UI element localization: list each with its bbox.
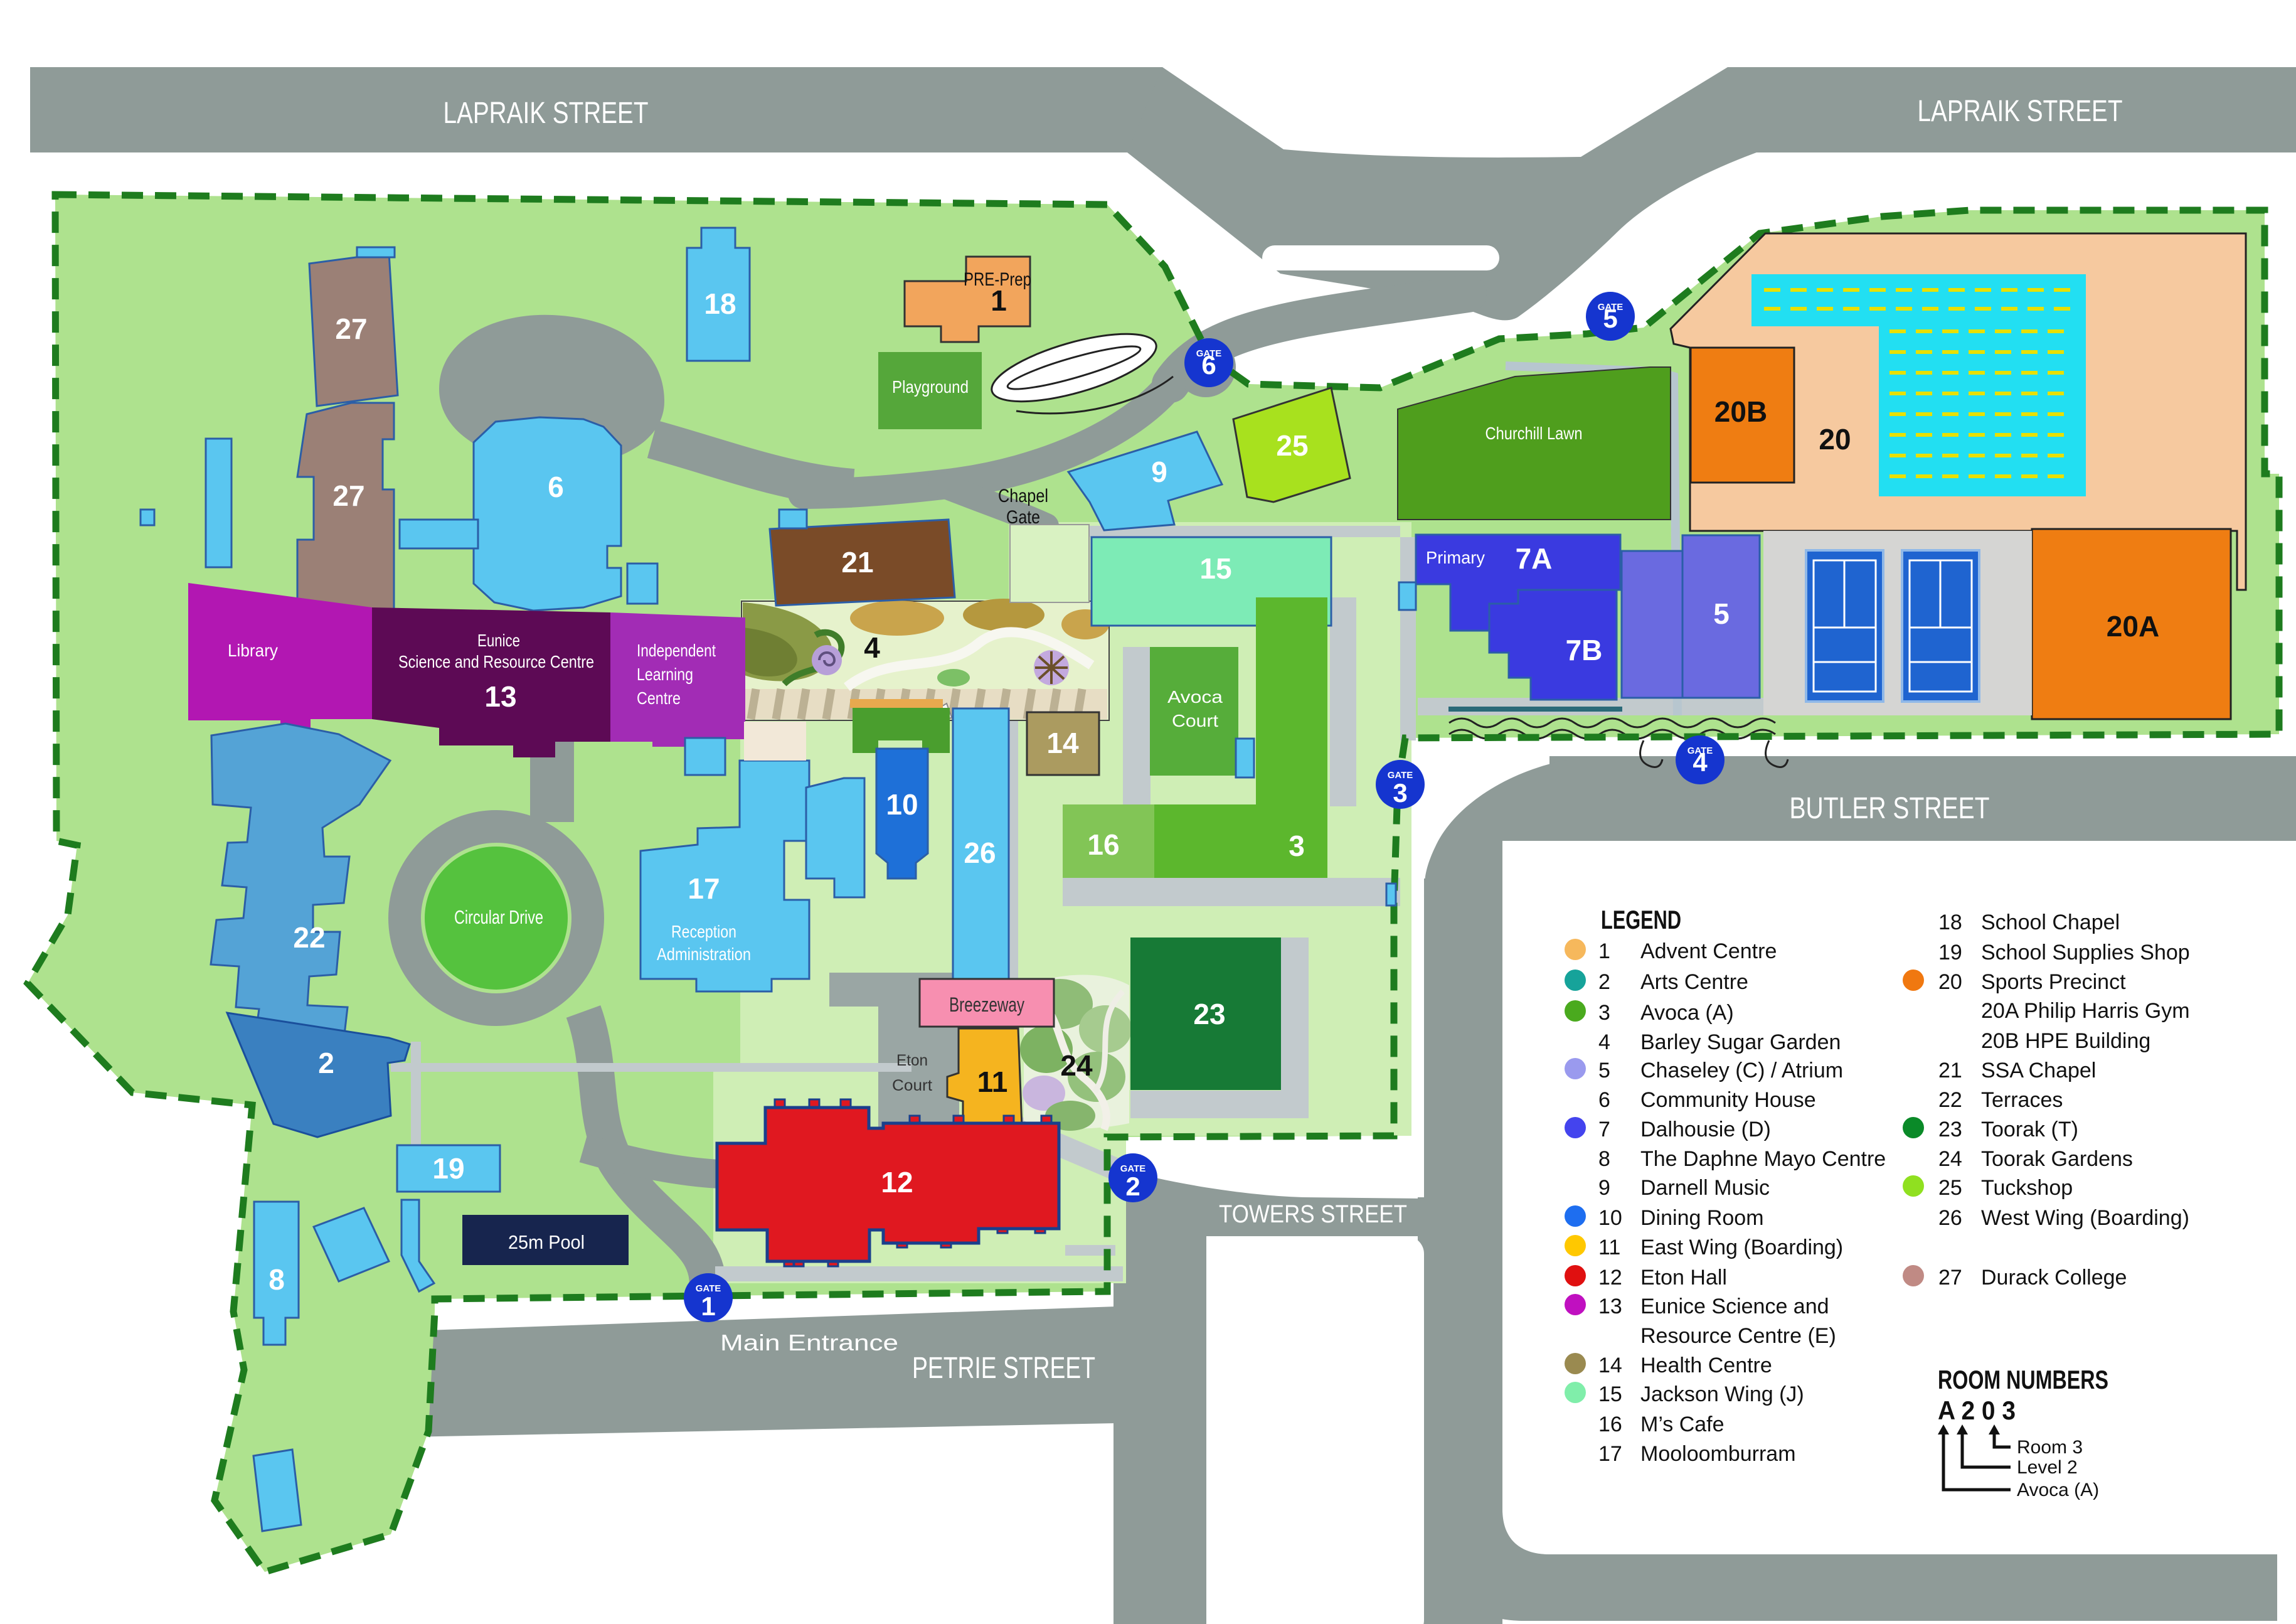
svg-text:LAPRAIK STREET: LAPRAIK STREET <box>444 97 649 130</box>
svg-text:12: 12 <box>881 1166 913 1199</box>
svg-text:8: 8 <box>1598 1147 1610 1171</box>
svg-text:West Wing (Boarding): West Wing (Boarding) <box>1981 1206 2189 1230</box>
svg-text:Centre: Centre <box>637 688 681 708</box>
svg-text:Science and Resource Centre: Science and Resource Centre <box>398 652 594 671</box>
svg-text:12: 12 <box>1598 1266 1622 1290</box>
svg-text:6: 6 <box>1598 1088 1610 1112</box>
svg-text:10: 10 <box>886 788 918 821</box>
svg-text:2: 2 <box>318 1047 334 1079</box>
svg-text:BUTLER STREET: BUTLER STREET <box>1790 792 1990 825</box>
svg-text:Dining Room: Dining Room <box>1640 1206 1764 1230</box>
svg-text:Learning: Learning <box>637 665 693 684</box>
svg-text:Jackson Wing (J): Jackson Wing (J) <box>1640 1382 1804 1406</box>
svg-text:A 2 0 3: A 2 0 3 <box>1938 1396 2016 1425</box>
svg-text:6: 6 <box>548 471 564 503</box>
svg-text:Chaseley (C) / Atrium: Chaseley (C) / Atrium <box>1640 1059 1843 1082</box>
svg-text:14: 14 <box>1046 727 1079 759</box>
svg-text:3: 3 <box>1289 830 1305 862</box>
svg-text:PETRIE STREET: PETRIE STREET <box>912 1352 1095 1385</box>
svg-text:7B: 7B <box>1566 634 1603 666</box>
svg-text:Mooloomburram: Mooloomburram <box>1640 1442 1796 1466</box>
svg-text:Court: Court <box>892 1077 932 1094</box>
svg-text:20A: 20A <box>2107 610 2159 643</box>
svg-text:27: 27 <box>332 479 364 512</box>
svg-text:1: 1 <box>1598 939 1610 963</box>
svg-text:Library: Library <box>228 641 278 660</box>
svg-text:2: 2 <box>1125 1172 1140 1201</box>
svg-text:20A Philip Harris Gym: 20A Philip Harris Gym <box>1981 999 2190 1023</box>
svg-text:24: 24 <box>1060 1049 1093 1082</box>
svg-text:Tuckshop: Tuckshop <box>1981 1176 2073 1200</box>
svg-text:The Daphne Mayo Centre: The Daphne Mayo Centre <box>1640 1147 1886 1171</box>
svg-text:8: 8 <box>268 1263 285 1296</box>
svg-text:SSA Chapel: SSA Chapel <box>1981 1059 2096 1082</box>
svg-text:20: 20 <box>1819 423 1851 456</box>
svg-text:School Chapel: School Chapel <box>1981 911 2120 934</box>
svg-text:9: 9 <box>1151 456 1167 488</box>
svg-text:4: 4 <box>1598 1030 1610 1054</box>
svg-text:18: 18 <box>704 287 736 320</box>
svg-text:Breezeway: Breezeway <box>949 993 1024 1016</box>
svg-text:14: 14 <box>1598 1354 1622 1377</box>
svg-text:20B: 20B <box>1714 395 1767 428</box>
svg-text:25: 25 <box>1938 1176 1962 1200</box>
svg-text:7A: 7A <box>1516 542 1553 575</box>
svg-text:Resource Centre (E): Resource Centre (E) <box>1640 1324 1836 1348</box>
svg-text:Sports Precinct: Sports Precinct <box>1981 970 2126 994</box>
svg-text:Eton: Eton <box>896 1052 928 1069</box>
svg-text:Reception: Reception <box>671 922 736 941</box>
svg-text:Darnell Music: Darnell Music <box>1640 1176 1770 1200</box>
svg-text:Advent Centre: Advent Centre <box>1640 939 1777 963</box>
svg-text:Eunice Science and: Eunice Science and <box>1640 1295 1829 1318</box>
svg-text:26: 26 <box>1938 1206 1962 1230</box>
svg-text:24: 24 <box>1938 1147 1962 1171</box>
svg-text:22: 22 <box>1938 1088 1962 1112</box>
svg-text:15: 15 <box>1598 1382 1622 1406</box>
svg-text:1: 1 <box>991 284 1007 317</box>
svg-text:Toorak Gardens: Toorak Gardens <box>1981 1147 2133 1171</box>
svg-text:LEGEND: LEGEND <box>1601 905 1681 934</box>
svg-text:Circular Drive: Circular Drive <box>454 906 543 928</box>
svg-text:Barley Sugar Garden: Barley Sugar Garden <box>1640 1030 1841 1054</box>
svg-text:21: 21 <box>841 546 873 579</box>
svg-text:6: 6 <box>1201 350 1216 380</box>
svg-text:3: 3 <box>1598 1001 1610 1025</box>
svg-text:Toorak (T): Toorak (T) <box>1981 1118 2078 1141</box>
svg-text:27: 27 <box>1938 1266 1962 1290</box>
svg-text:Primary: Primary <box>1426 548 1485 567</box>
svg-text:27: 27 <box>335 313 367 345</box>
svg-text:Avoca: Avoca <box>1167 687 1223 707</box>
svg-text:Terraces: Terraces <box>1981 1088 2063 1112</box>
svg-text:25m Pool: 25m Pool <box>508 1231 585 1253</box>
svg-text:13: 13 <box>1598 1295 1622 1318</box>
svg-text:16: 16 <box>1087 828 1119 861</box>
svg-text:LAPRAIK STREET: LAPRAIK STREET <box>1918 95 2123 128</box>
svg-text:Durack College: Durack College <box>1981 1266 2127 1290</box>
svg-text:17: 17 <box>688 872 720 905</box>
svg-text:21: 21 <box>1938 1059 1962 1082</box>
svg-text:19: 19 <box>432 1152 464 1185</box>
svg-text:Community House: Community House <box>1640 1088 1816 1112</box>
svg-text:Eton Hall: Eton Hall <box>1640 1266 1727 1290</box>
svg-text:Court: Court <box>1172 711 1218 730</box>
svg-text:15: 15 <box>1199 552 1231 585</box>
svg-text:Churchill Lawn: Churchill Lawn <box>1485 424 1583 443</box>
svg-text:11: 11 <box>977 1066 1008 1098</box>
svg-text:25: 25 <box>1276 429 1308 462</box>
svg-text:16: 16 <box>1598 1413 1622 1436</box>
svg-text:Main Entrance: Main Entrance <box>720 1330 898 1355</box>
svg-text:2: 2 <box>1598 970 1610 994</box>
svg-text:East Wing (Boarding): East Wing (Boarding) <box>1640 1236 1843 1259</box>
svg-text:4: 4 <box>1693 747 1708 777</box>
svg-text:3: 3 <box>1393 778 1407 808</box>
svg-text:23: 23 <box>1193 998 1225 1030</box>
svg-text:Playground: Playground <box>892 377 969 397</box>
svg-text:22: 22 <box>293 921 325 954</box>
svg-text:School Supplies Shop: School Supplies Shop <box>1981 941 2190 964</box>
svg-text:Room 3: Room 3 <box>2017 1437 2083 1458</box>
svg-text:7: 7 <box>1598 1118 1610 1141</box>
svg-text:20: 20 <box>1938 970 1962 994</box>
svg-text:9: 9 <box>1598 1176 1610 1200</box>
svg-text:13: 13 <box>484 680 516 713</box>
svg-text:5: 5 <box>1713 597 1730 630</box>
svg-text:19: 19 <box>1938 941 1962 964</box>
svg-text:17: 17 <box>1598 1442 1622 1466</box>
svg-text:ROOM NUMBERS: ROOM NUMBERS <box>1938 1365 2108 1394</box>
svg-text:10: 10 <box>1598 1206 1622 1230</box>
svg-text:Dalhousie (D): Dalhousie (D) <box>1640 1118 1771 1141</box>
svg-text:1: 1 <box>701 1291 715 1321</box>
svg-text:26: 26 <box>964 836 996 869</box>
svg-text:Arts Centre: Arts Centre <box>1640 970 1748 994</box>
svg-text:Avoca (A): Avoca (A) <box>1640 1001 1734 1025</box>
svg-text:Level 2: Level 2 <box>2017 1457 2078 1478</box>
svg-text:Chapel: Chapel <box>998 486 1048 506</box>
svg-text:18: 18 <box>1938 911 1962 934</box>
svg-text:Eunice: Eunice <box>477 631 520 650</box>
svg-text:5: 5 <box>1603 304 1617 333</box>
svg-text:TOWERS STREET: TOWERS STREET <box>1219 1200 1407 1228</box>
svg-text:4: 4 <box>864 631 880 664</box>
svg-text:11: 11 <box>1598 1236 1620 1259</box>
svg-text:5: 5 <box>1598 1059 1610 1082</box>
svg-text:23: 23 <box>1938 1118 1962 1141</box>
svg-text:Independent: Independent <box>637 641 716 660</box>
svg-text:Gate: Gate <box>1006 507 1040 528</box>
svg-text:Avoca (A): Avoca (A) <box>2017 1480 2099 1500</box>
svg-text:M’s Cafe: M’s Cafe <box>1640 1413 1725 1436</box>
svg-text:Health Centre: Health Centre <box>1640 1354 1772 1377</box>
svg-text:Administration: Administration <box>657 944 751 964</box>
svg-text:20B HPE Building: 20B HPE Building <box>1981 1029 2150 1053</box>
